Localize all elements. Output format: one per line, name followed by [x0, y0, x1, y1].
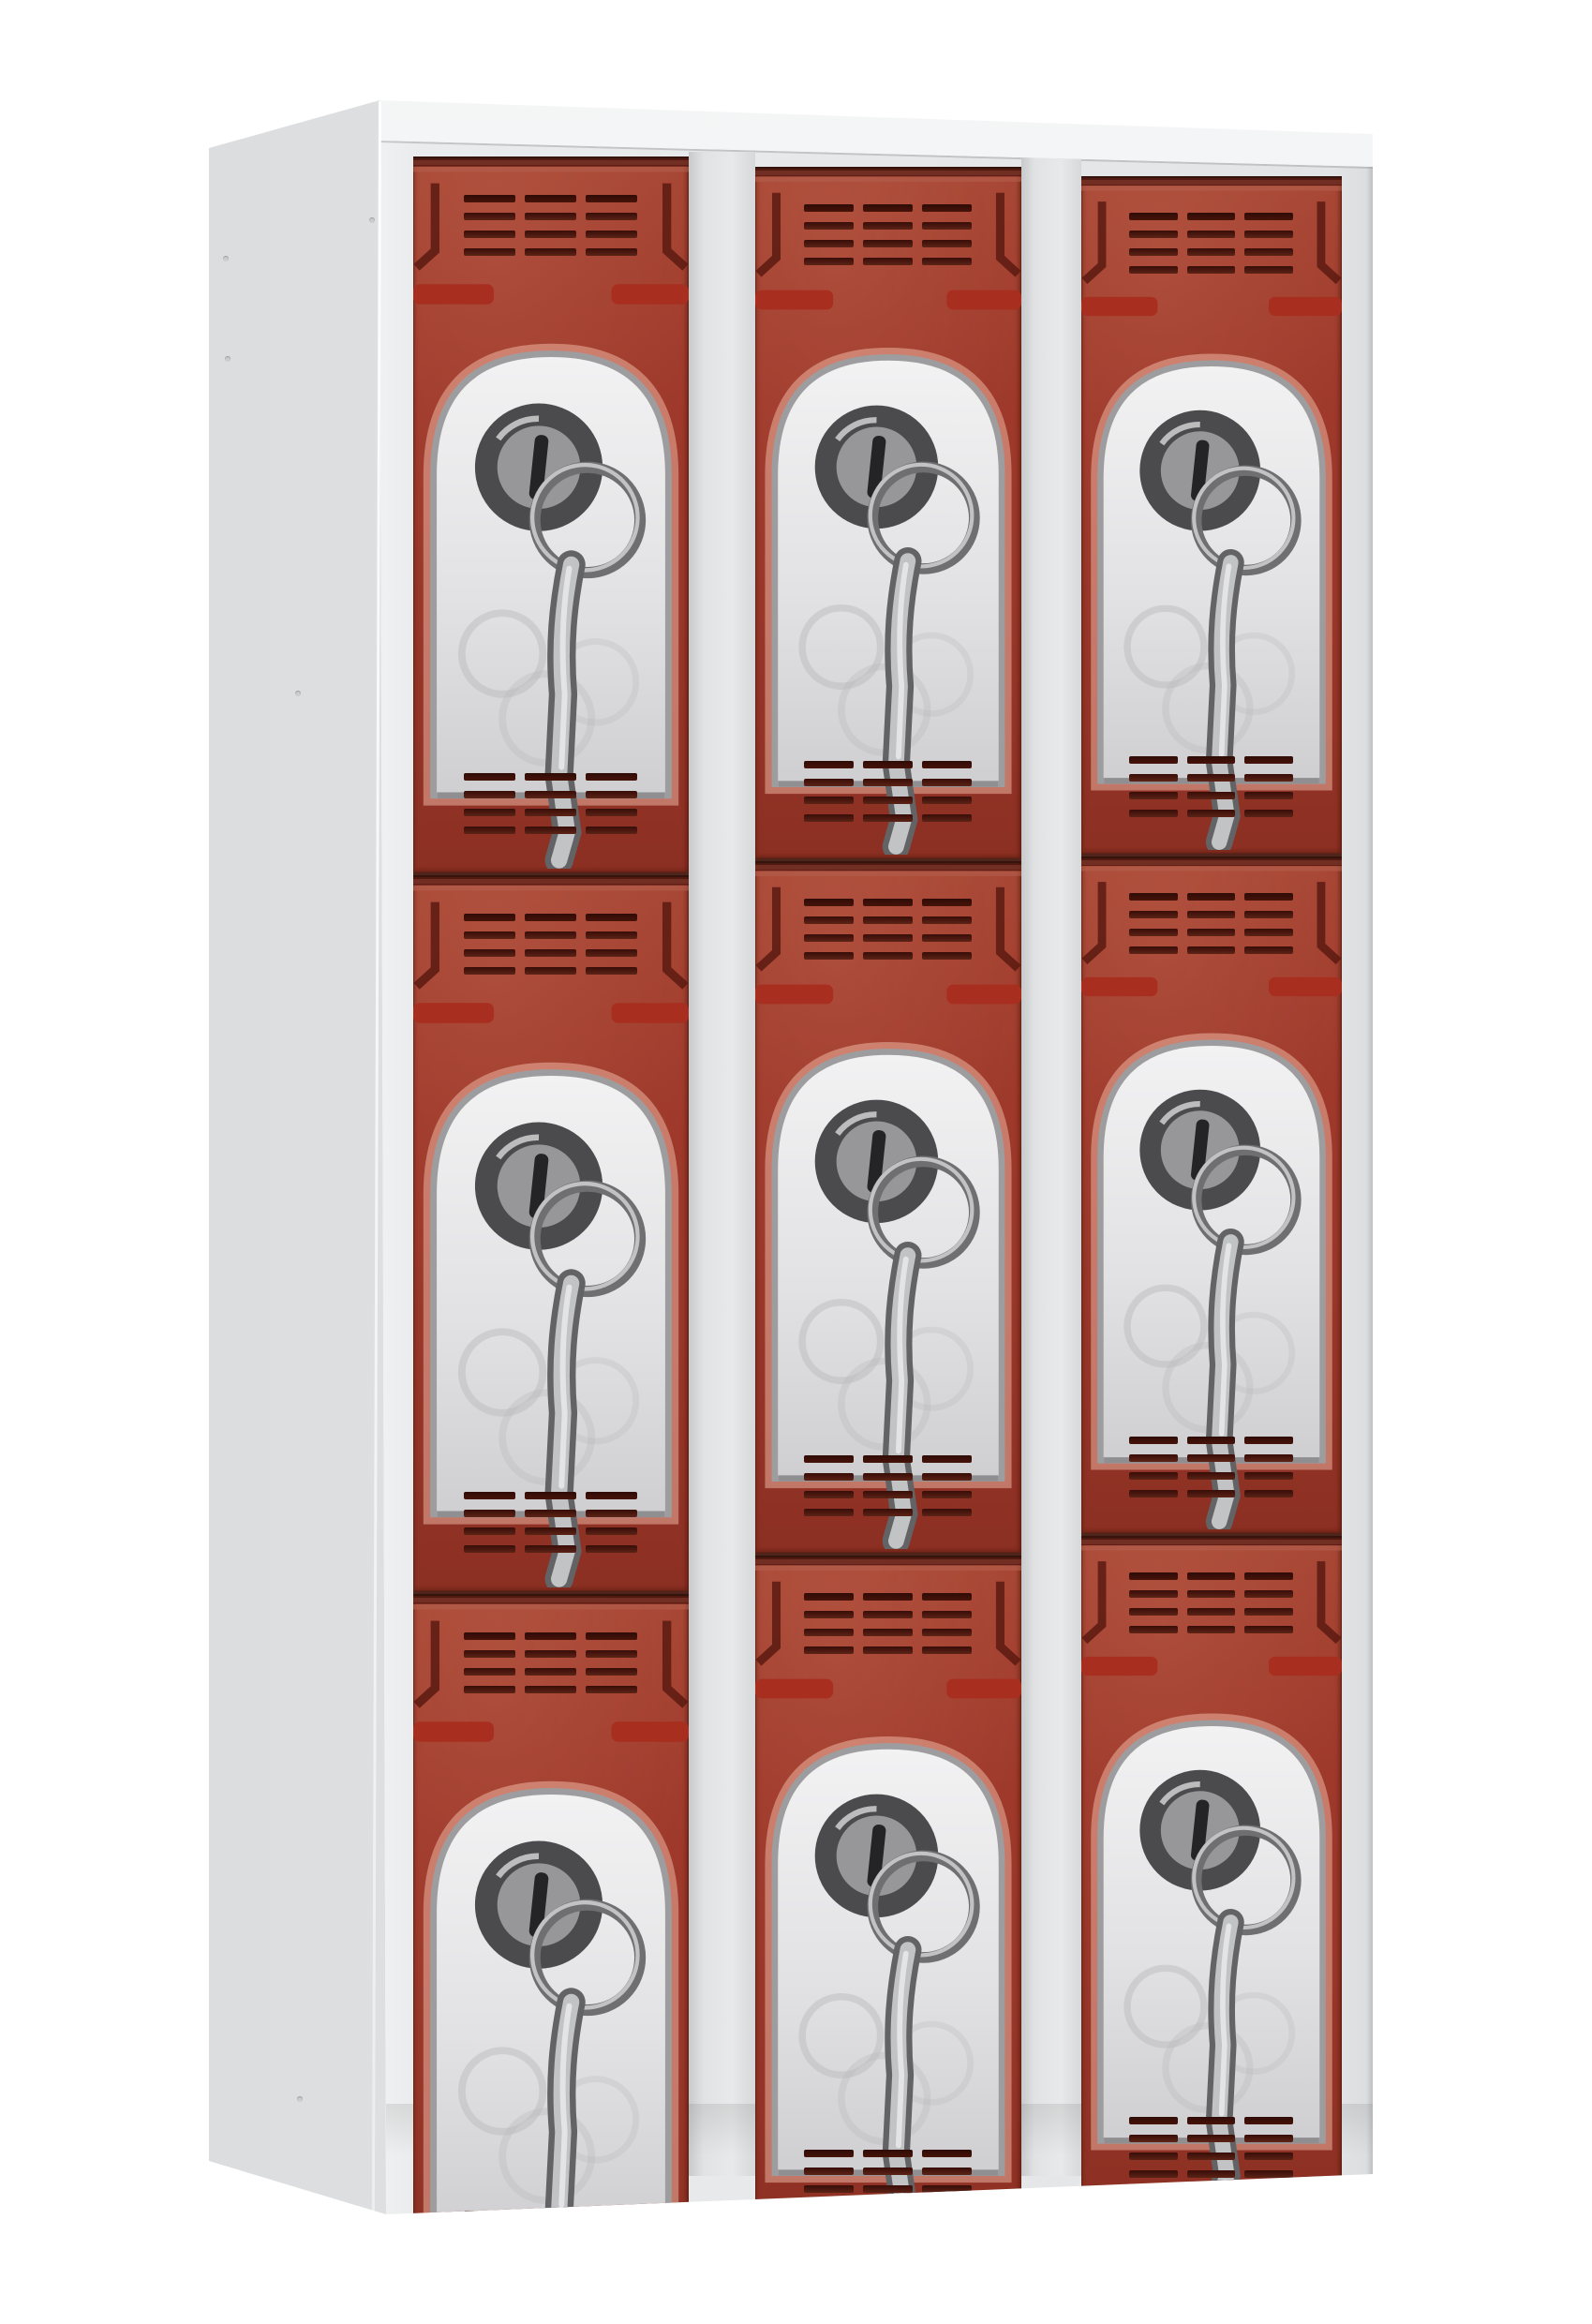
vent-slot	[586, 967, 637, 975]
vent-slot	[1187, 756, 1236, 764]
vent-slot	[1129, 1472, 1178, 1480]
vent-slot	[1244, 929, 1293, 936]
vent-slot	[525, 2246, 576, 2254]
vent-slot	[1187, 2135, 1236, 2142]
vent-slot	[586, 2264, 637, 2272]
vent-slot	[525, 931, 576, 939]
vent-slot	[804, 934, 854, 942]
vent-slot	[922, 1473, 972, 1481]
vent-slot	[464, 949, 515, 957]
vent-slot	[464, 1545, 515, 1553]
vent-slot	[1187, 1490, 1236, 1497]
vent-slot	[525, 949, 576, 957]
vent-slot	[922, 934, 972, 942]
vent-slot	[464, 2211, 515, 2218]
vent-slot	[1244, 1626, 1293, 1633]
top-vent-grille-icon	[1129, 213, 1293, 274]
vent-slot	[1129, 2135, 1178, 2142]
vent-slot	[464, 213, 515, 220]
vent-slot	[922, 814, 972, 822]
locker-door-r1-c1[interactable]	[413, 156, 689, 872]
vent-slot	[922, 761, 972, 768]
vent-slot	[464, 2246, 515, 2254]
vent-slot	[586, 1632, 637, 1640]
vent-slot	[586, 1527, 637, 1535]
vent-slot	[1187, 2117, 1236, 2124]
vent-slot	[1187, 1590, 1236, 1598]
vent-slot	[1129, 893, 1178, 901]
vent-slot	[922, 916, 972, 924]
vent-slot	[863, 899, 913, 906]
vent-slot	[1187, 1472, 1236, 1480]
screw-dot	[297, 2096, 303, 2102]
vent-slot	[525, 1686, 576, 1693]
vent-slot	[464, 809, 515, 816]
bottom-vent-grille-icon	[804, 2150, 972, 2211]
locker-door-r2-c1[interactable]	[413, 875, 689, 1591]
vent-slot	[1244, 1454, 1293, 1462]
vent-slot	[1244, 248, 1293, 256]
vent-slot	[525, 809, 576, 816]
vent-slot	[586, 809, 637, 816]
vent-slot	[586, 791, 637, 798]
vent-slot	[804, 1611, 854, 1618]
screw-dot	[295, 691, 301, 696]
locker-door-r2-c3[interactable]	[1081, 857, 1342, 1534]
vent-slot	[1129, 1572, 1178, 1580]
vent-slot	[525, 773, 576, 781]
vent-slot	[1129, 774, 1178, 782]
vent-slot	[586, 949, 637, 957]
product-photo-scene	[0, 0, 1592, 2324]
vent-slot	[1129, 1608, 1178, 1616]
vent-slot	[804, 797, 854, 804]
screw-dot	[369, 217, 375, 223]
vent-slot	[863, 1611, 913, 1618]
vent-slot	[1244, 893, 1293, 901]
frame-right-edge	[1366, 100, 1373, 2214]
vent-slot	[922, 2168, 972, 2175]
vent-slot	[464, 773, 515, 781]
frame-post	[1021, 152, 1081, 2176]
vent-slot	[525, 1650, 576, 1658]
vent-slot	[922, 2203, 972, 2211]
vent-slot	[863, 240, 913, 247]
vent-slot	[1129, 1490, 1178, 1497]
vent-slot	[1187, 266, 1236, 274]
vent-slot	[464, 2228, 515, 2236]
vent-slot	[525, 1632, 576, 1640]
vent-slot	[1129, 1590, 1178, 1598]
vent-slot	[863, 1491, 913, 1498]
vent-slot	[464, 2264, 515, 2272]
vent-slot	[1244, 1590, 1293, 1598]
vent-slot	[1129, 248, 1178, 256]
vent-slot	[922, 204, 972, 212]
locker-door-r2-c2[interactable]	[755, 861, 1021, 1553]
vent-slot	[922, 1491, 972, 1498]
vent-slot	[804, 761, 854, 768]
vent-slot	[525, 213, 576, 220]
vent-slot	[804, 2168, 854, 2175]
vent-slot	[863, 779, 913, 786]
vent-slot	[1187, 929, 1236, 936]
vent-slot	[586, 195, 637, 202]
bottom-vent-grille-icon	[1129, 2117, 1293, 2178]
vent-slot	[1129, 946, 1178, 954]
top-vent-grille-icon	[1129, 893, 1293, 954]
vent-slot	[464, 1527, 515, 1535]
vent-slot	[1129, 1437, 1178, 1444]
vent-slot	[804, 2185, 854, 2193]
vent-slot	[1244, 2135, 1293, 2142]
vent-slot	[804, 1593, 854, 1601]
vent-slot	[863, 1646, 913, 1654]
vent-slot	[863, 952, 913, 960]
vent-slot	[586, 827, 637, 834]
locker-column-2	[755, 167, 1021, 2124]
vent-slot	[863, 1455, 913, 1463]
vent-slot	[1187, 213, 1236, 220]
vent-slot	[922, 1593, 972, 1601]
vent-slot	[1187, 1572, 1236, 1580]
vent-slot	[922, 1455, 972, 1463]
vent-slot	[1244, 810, 1293, 817]
vent-slot	[1187, 774, 1236, 782]
vent-slot	[1244, 1490, 1293, 1497]
vent-slot	[1129, 810, 1178, 817]
vent-slot	[464, 1686, 515, 1693]
vent-slot	[863, 258, 913, 265]
vent-slot	[1244, 911, 1293, 918]
vent-slot	[464, 1632, 515, 1640]
vent-slot	[1244, 213, 1293, 220]
locker-door-r3-c1[interactable]	[413, 1594, 689, 2310]
vent-slot	[464, 914, 515, 921]
vent-slot	[525, 195, 576, 202]
vent-slot	[1129, 2170, 1178, 2178]
vent-slot	[863, 1629, 913, 1636]
vent-slot	[464, 827, 515, 834]
locker-door-r1-c2[interactable]	[755, 167, 1021, 858]
vent-slot	[922, 222, 972, 230]
vent-slot	[1244, 2153, 1293, 2160]
vent-slot	[922, 258, 972, 265]
vent-slot	[804, 1646, 854, 1654]
vent-slot	[863, 2168, 913, 2175]
vent-slot	[525, 1545, 576, 1553]
vent-slot	[586, 1492, 637, 1499]
vent-slot	[863, 934, 913, 942]
frame-post	[689, 152, 755, 2176]
vent-slot	[586, 2228, 637, 2236]
screw-dot	[225, 356, 231, 362]
bottom-vent-grille-icon	[1129, 756, 1293, 817]
vent-slot	[804, 1629, 854, 1636]
vent-slot	[586, 213, 637, 220]
locker-door-r3-c2[interactable]	[755, 1556, 1021, 2247]
vent-slot	[863, 1593, 913, 1601]
vent-slot	[804, 204, 854, 212]
vent-slot	[804, 916, 854, 924]
vent-slot	[525, 967, 576, 975]
vent-slot	[586, 231, 637, 238]
vent-slot	[804, 899, 854, 906]
top-vent-grille-icon	[464, 914, 637, 975]
vent-slot	[1244, 774, 1293, 782]
vent-slot	[525, 1668, 576, 1676]
vent-slot	[804, 814, 854, 822]
bottom-vent-grille-icon	[464, 1492, 637, 1553]
vent-slot	[525, 914, 576, 921]
vent-slot	[586, 1545, 637, 1553]
vent-slot	[804, 2203, 854, 2211]
vent-slot	[1129, 1626, 1178, 1633]
vent-slot	[922, 2185, 972, 2193]
vent-slot	[804, 240, 854, 247]
vent-slot	[525, 791, 576, 798]
vent-slot	[1187, 248, 1236, 256]
vent-slot	[525, 827, 576, 834]
vent-slot	[1244, 231, 1293, 238]
vent-slot	[464, 231, 515, 238]
vent-slot	[1244, 792, 1293, 799]
vent-slot	[1187, 231, 1236, 238]
vent-slot	[804, 258, 854, 265]
top-vent-grille-icon	[464, 1632, 637, 1693]
vent-slot	[922, 797, 972, 804]
vent-slot	[863, 2203, 913, 2211]
vent-slot	[1129, 2153, 1178, 2160]
vent-slot	[1244, 1608, 1293, 1616]
vent-slot	[1129, 756, 1178, 764]
vent-slot	[1187, 946, 1236, 954]
bottom-vent-grille-icon	[464, 773, 637, 834]
vent-slot	[922, 240, 972, 247]
top-vent-grille-icon	[804, 204, 972, 265]
vent-slot	[863, 204, 913, 212]
vent-slot	[464, 1650, 515, 1658]
vent-slot	[804, 2150, 854, 2157]
vent-slot	[1187, 810, 1236, 817]
vent-slot	[1187, 1608, 1236, 1616]
bottom-vent-grille-icon	[804, 1455, 972, 1516]
vent-slot	[464, 791, 515, 798]
vent-slot	[922, 1629, 972, 1636]
top-vent-grille-icon	[804, 899, 972, 960]
vent-slot	[1129, 792, 1178, 799]
vent-slot	[586, 248, 637, 256]
vent-slot	[1244, 2170, 1293, 2178]
vent-slot	[586, 1668, 637, 1676]
vent-slot	[586, 914, 637, 921]
vent-slot	[922, 1509, 972, 1516]
locker-column-1	[413, 156, 689, 2141]
vent-slot	[525, 231, 576, 238]
vent-slot	[525, 2264, 576, 2272]
vent-slot	[1129, 266, 1178, 274]
vent-slot	[804, 1473, 854, 1481]
vent-slot	[804, 779, 854, 786]
vent-slot	[804, 1455, 854, 1463]
vent-slot	[804, 222, 854, 230]
vent-slot	[863, 761, 913, 768]
vent-slot	[1187, 1437, 1236, 1444]
vent-slot	[922, 1611, 972, 1618]
vent-slot	[586, 2246, 637, 2254]
vent-slot	[1244, 756, 1293, 764]
vent-slot	[922, 952, 972, 960]
vent-slot	[863, 2185, 913, 2193]
vent-slot	[922, 899, 972, 906]
vent-slot	[1129, 911, 1178, 918]
vent-slot	[863, 1473, 913, 1481]
vent-slot	[863, 1509, 913, 1516]
lock-icon[interactable]	[413, 1759, 689, 2306]
vent-slot	[1187, 893, 1236, 901]
vent-slot	[1244, 266, 1293, 274]
vent-slot	[525, 2211, 576, 2218]
vent-slot	[1244, 2117, 1293, 2124]
vent-slot	[1129, 231, 1178, 238]
screw-dot	[223, 256, 229, 261]
locker-column-3	[1081, 176, 1342, 2108]
bottom-vent-grille-icon	[804, 761, 972, 822]
vent-slot	[586, 931, 637, 939]
vent-slot	[525, 1527, 576, 1535]
vent-slot	[1244, 1472, 1293, 1480]
locker-door-r1-c3[interactable]	[1081, 176, 1342, 854]
bottom-vent-grille-icon	[464, 2211, 637, 2272]
vent-slot	[1129, 929, 1178, 936]
vent-slot	[922, 2150, 972, 2157]
vent-slot	[525, 2228, 576, 2236]
vent-slot	[525, 1492, 576, 1499]
vent-slot	[464, 195, 515, 202]
vent-slot	[804, 1509, 854, 1516]
vent-slot	[464, 1668, 515, 1676]
locker-door-r3-c3[interactable]	[1081, 1536, 1342, 2213]
vent-slot	[1187, 911, 1236, 918]
vent-slot	[586, 773, 637, 781]
top-vent-grille-icon	[1129, 1572, 1293, 1633]
vent-slot	[525, 248, 576, 256]
vent-slot	[1129, 2117, 1178, 2124]
vent-slot	[586, 1510, 637, 1517]
vent-slot	[1244, 1572, 1293, 1580]
vent-slot	[464, 931, 515, 939]
vent-slot	[464, 248, 515, 256]
vent-slot	[863, 222, 913, 230]
vent-slot	[1244, 946, 1293, 954]
vent-slot	[1129, 1454, 1178, 1462]
vent-slot	[464, 1492, 515, 1499]
vent-slot	[804, 952, 854, 960]
vent-slot	[863, 797, 913, 804]
bottom-vent-grille-icon	[1129, 1437, 1293, 1497]
top-vent-grille-icon	[804, 1593, 972, 1654]
vent-slot	[1244, 1437, 1293, 1444]
vent-slot	[922, 1646, 972, 1654]
vent-slot	[586, 2211, 637, 2218]
vent-slot	[525, 1510, 576, 1517]
vent-slot	[1187, 1454, 1236, 1462]
vent-slot	[922, 779, 972, 786]
vent-slot	[586, 1650, 637, 1658]
vent-slot	[863, 916, 913, 924]
vent-slot	[464, 1510, 515, 1517]
vent-slot	[1187, 2170, 1236, 2178]
vent-slot	[1187, 2153, 1236, 2160]
top-vent-grille-icon	[464, 195, 637, 256]
vent-slot	[586, 1686, 637, 1693]
vent-slot	[464, 967, 515, 975]
vent-slot	[1187, 1626, 1236, 1633]
vent-slot	[863, 2150, 913, 2157]
vent-slot	[1187, 792, 1236, 799]
vent-slot	[1129, 213, 1178, 220]
vent-slot	[863, 814, 913, 822]
vent-slot	[804, 1491, 854, 1498]
locker-front-frame	[379, 100, 1373, 2214]
